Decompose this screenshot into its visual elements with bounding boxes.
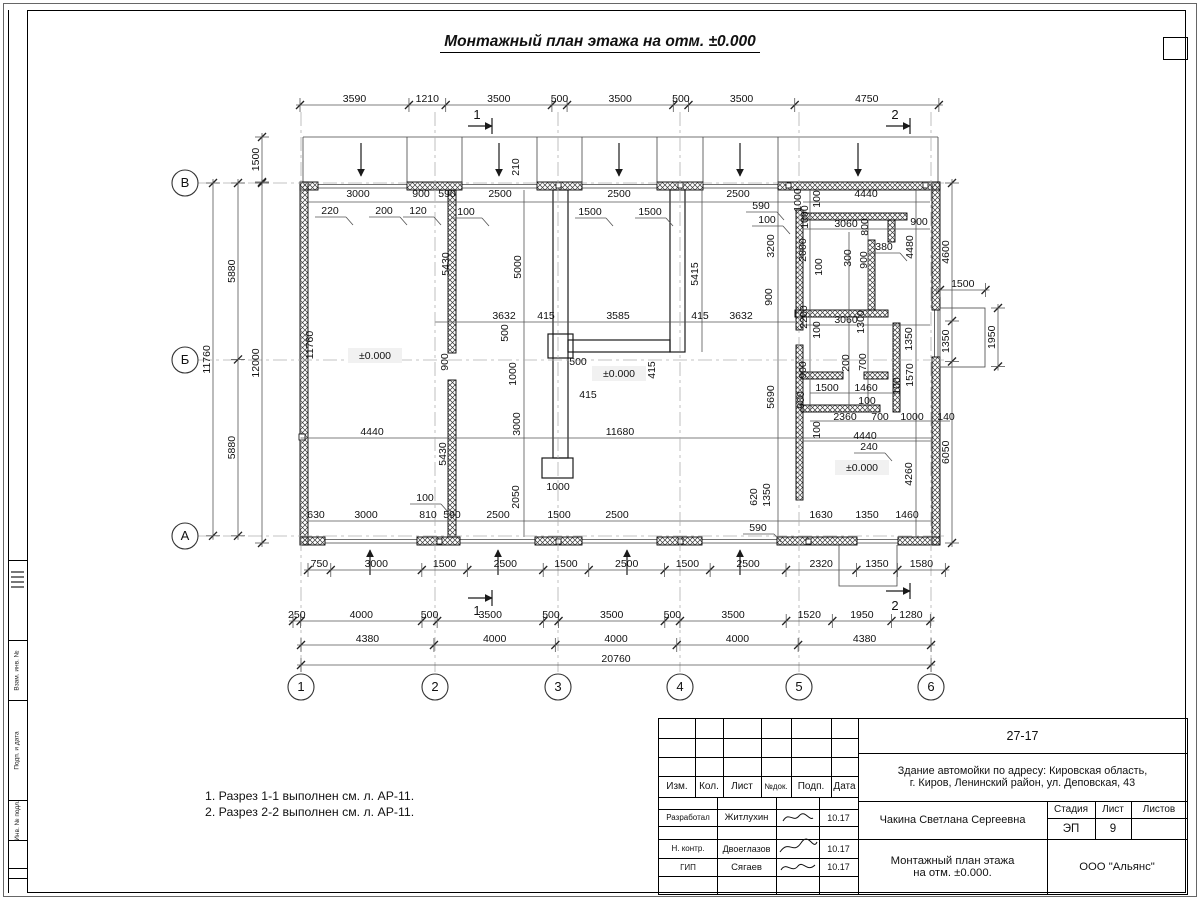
dim-label: А — [181, 528, 190, 543]
dim-label: 3500 — [600, 609, 624, 621]
dim-label: 415 — [579, 389, 597, 401]
person-date: 10.17 — [819, 858, 858, 876]
dim-label: 1 — [473, 107, 480, 122]
dim-label: 3000 — [365, 558, 389, 570]
dim-label: 630 — [307, 509, 325, 521]
dim-label: 2500 — [605, 509, 629, 521]
dim-label: 11760 — [304, 331, 316, 360]
dim-label: 900 — [795, 391, 807, 409]
dim-label: В — [181, 175, 190, 190]
dim-label: 1300 — [855, 310, 867, 334]
dim-label: 3500 — [479, 609, 503, 621]
dim-label: 700 — [871, 411, 889, 423]
dim-label: 240 — [860, 441, 878, 453]
dim-label: 590 — [749, 522, 767, 534]
dim-label: 3590 — [343, 93, 367, 105]
dim-label: 1350 — [761, 483, 773, 507]
dim-label: 3632 — [492, 310, 516, 322]
dim-label: 1000 — [546, 481, 570, 493]
dim-label: 1350 — [865, 558, 889, 570]
dim-label: 3 — [554, 679, 561, 694]
dim-label: 900 — [763, 288, 775, 306]
dim-label: 100 — [758, 214, 776, 226]
dim-label: 6 — [927, 679, 934, 694]
dim-label: 3060 — [834, 218, 858, 230]
dim-label: 1280 — [899, 609, 923, 621]
dim-label: 415 — [691, 310, 709, 322]
dim-label: 3500 — [721, 609, 745, 621]
stage-label: Стадия — [1047, 801, 1095, 818]
dim-label: 100 — [811, 190, 823, 208]
person-name: Сягаев — [717, 858, 776, 876]
dim-label: 1580 — [910, 558, 934, 570]
dim-label: 1520 — [798, 609, 822, 621]
dim-label: 100 — [813, 258, 825, 276]
dim-label: 3200 — [765, 234, 777, 258]
dim-label: 1570 — [904, 363, 916, 387]
signature — [777, 837, 819, 858]
dim-label: 810 — [419, 509, 437, 521]
dim-label: 3585 — [606, 310, 630, 322]
dim-label: 4000 — [350, 609, 374, 621]
dim-label: 5880 — [226, 259, 238, 283]
dim-label: 120 — [409, 205, 427, 217]
person-role: ГИП — [659, 858, 717, 876]
dim-label: 4480 — [904, 235, 916, 259]
dim-label: 1 — [297, 679, 304, 694]
dim-label: 500 — [672, 93, 690, 105]
dim-label: 415 — [646, 361, 658, 379]
dim-label: 3500 — [487, 93, 511, 105]
organization-name: ООО "Альянс" — [1047, 839, 1187, 894]
title-block: Изм. Кол. Лист №док. Подп. Дата Разработ… — [658, 718, 1188, 895]
dim-label: 1500 — [250, 148, 262, 172]
dim-label: 500 — [664, 609, 682, 621]
dim-label: 300 — [842, 249, 854, 267]
dim-label: 140 — [937, 411, 955, 423]
dim-label: 3500 — [730, 93, 754, 105]
dim-label: 5 — [795, 679, 802, 694]
signature — [777, 858, 819, 876]
dim-label: 220 — [321, 205, 339, 217]
dim-label: 620 — [748, 488, 760, 506]
dim-label: 900 — [412, 188, 430, 200]
dim-label: 2500 — [494, 558, 518, 570]
dim-label: 3000 — [511, 412, 523, 436]
dim-label: 1500 — [951, 278, 975, 290]
dim-label: 12000 — [250, 348, 262, 377]
dim-label: 2000 — [797, 238, 809, 262]
rev-header-data: Дата — [831, 776, 858, 797]
dim-label: 1500 — [815, 382, 839, 394]
author-name: Чакина Светлана Сергеевна — [858, 801, 1047, 839]
dim-label: 500 — [551, 93, 569, 105]
dim-label: 590 — [752, 200, 770, 212]
window-marks — [299, 183, 928, 544]
drawing-sheet: Взам. инв. № Подп. и дата Инв. № подл. М… — [0, 0, 1200, 900]
dim-label: 1000 — [799, 205, 811, 229]
dim-label: 2 — [891, 107, 898, 122]
dim-label: 2320 — [810, 558, 834, 570]
stage-value: ЭП — [1047, 818, 1095, 839]
dim-label: 100 — [858, 395, 876, 407]
dim-label: ±0.000 — [359, 350, 391, 362]
project-address: Здание автомойки по адресу: Кировская об… — [858, 753, 1187, 801]
dim-label: 2 — [431, 679, 438, 694]
dim-label: 4380 — [853, 633, 877, 645]
dim-label: 4000 — [726, 633, 750, 645]
dim-label: 700 — [857, 353, 869, 371]
dim-label: 200 — [375, 205, 393, 217]
dim-label: 250 — [288, 609, 306, 621]
dim-label: 2500 — [488, 188, 512, 200]
dim-label: 1950 — [986, 325, 998, 349]
dim-label: 500 — [499, 324, 511, 342]
dim-label: 3000 — [354, 509, 378, 521]
dim-label: 11680 — [606, 426, 635, 438]
dim-label: 3000 — [346, 188, 370, 200]
dim-label: 1350 — [903, 327, 915, 351]
dim-label: 4260 — [903, 462, 915, 486]
dim-label: 1460 — [854, 382, 878, 394]
dim-label: 1350 — [855, 509, 879, 521]
sheet-label: Лист — [1095, 801, 1131, 818]
dim-label: 4000 — [604, 633, 628, 645]
interior-dim-lines — [301, 190, 950, 537]
canopy-lines — [303, 137, 938, 182]
dim-label: 20760 — [601, 653, 630, 665]
rev-header-kol: Кол. — [695, 776, 723, 797]
dim-label: 2500 — [607, 188, 631, 200]
dim-label: 5000 — [512, 255, 524, 279]
rev-header-izm: Изм. — [659, 776, 695, 797]
dim-label: 2500 — [726, 188, 750, 200]
dim-label: 4000 — [483, 633, 507, 645]
dim-label: 4380 — [356, 633, 380, 645]
dim-label: 4600 — [940, 240, 952, 264]
dim-label: ±0.000 — [846, 462, 878, 474]
dim-label: 3500 — [609, 93, 633, 105]
dim-label: 2500 — [736, 558, 760, 570]
dim-label: 900 — [439, 353, 451, 371]
dim-label: 2 — [891, 598, 898, 613]
dim-label: 1000 — [900, 411, 924, 423]
dim-label: ±0.000 — [603, 368, 635, 380]
dim-label: 800 — [859, 218, 871, 236]
rev-header-list: Лист — [723, 776, 761, 797]
dim-label: 1500 — [676, 558, 700, 570]
dim-label: 100 — [811, 421, 823, 439]
dim-label: 1500 — [578, 206, 602, 218]
person-role: Разработал — [659, 809, 717, 826]
signature — [779, 809, 817, 826]
dim-label: Б — [181, 352, 190, 367]
dim-label: 100 — [891, 377, 903, 395]
dim-label: 500 — [542, 609, 560, 621]
rev-header-ndok: №док. — [761, 776, 791, 797]
dim-label: 1500 — [638, 206, 662, 218]
dim-label: 900 — [797, 361, 809, 379]
sheets-label: Листов — [1131, 801, 1187, 818]
dim-label: 1500 — [554, 558, 578, 570]
dim-label: 1500 — [547, 509, 571, 521]
dim-label: 1460 — [895, 509, 919, 521]
dim-label: 1000 — [507, 362, 519, 386]
dim-label: 5415 — [689, 262, 701, 286]
drawing-name-line: на отм. ±0.000. — [913, 867, 992, 879]
dim-label: 500 — [421, 609, 439, 621]
dim-label: 100 — [457, 206, 475, 218]
person-role: Н. контр. — [659, 839, 717, 858]
dim-label: 100 — [416, 492, 434, 504]
dim-label: 500 — [569, 356, 587, 368]
dim-label: 11760 — [201, 345, 213, 374]
dim-label: 2360 — [833, 411, 857, 423]
dim-label: 1 — [473, 603, 480, 618]
dim-label: 200 — [840, 354, 852, 372]
address-line: Здание автомойки по адресу: Кировская об… — [898, 765, 1147, 777]
sheet-number: 9 — [1095, 818, 1131, 839]
dim-label: 100 — [811, 321, 823, 339]
dim-label: 1630 — [809, 509, 833, 521]
dim-label: 4 — [676, 679, 683, 694]
dim-label: 2200 — [798, 305, 810, 329]
dim-label: 1500 — [433, 558, 457, 570]
dim-label: 590 — [443, 509, 461, 521]
person-name: Двоеглазов — [717, 839, 776, 858]
address-line: г. Киров, Ленинский район, ул. Деповская… — [910, 777, 1135, 789]
person-name: Житлухин — [717, 809, 776, 826]
dim-label: 2050 — [510, 485, 522, 509]
dim-label: 750 — [311, 558, 329, 570]
dim-label: 2500 — [615, 558, 639, 570]
dim-label: 900 — [910, 216, 928, 228]
dim-label: 4440 — [360, 426, 384, 438]
dim-label: 3632 — [729, 310, 753, 322]
person-date: 10.17 — [819, 809, 858, 826]
dim-label: 5880 — [226, 436, 238, 460]
dim-label: 4440 — [854, 188, 878, 200]
dim-label: 900 — [858, 251, 870, 269]
dim-label: 380 — [875, 241, 893, 253]
drawing-name-line: Монтажный план этажа — [891, 855, 1015, 867]
dim-label: 1210 — [416, 93, 440, 105]
rev-header-podp: Подп. — [791, 776, 831, 797]
dim-label: 5430 — [440, 252, 452, 276]
dim-label: 210 — [510, 158, 522, 176]
dim-label: 415 — [537, 310, 555, 322]
dim-label: 5430 — [437, 442, 449, 466]
person-date: 10.17 — [819, 839, 858, 858]
drawing-name: Монтажный план этажа на отм. ±0.000. — [858, 839, 1047, 894]
sheets-total — [1131, 818, 1187, 839]
project-code: 27-17 — [858, 719, 1187, 753]
dim-label: 590 — [438, 188, 456, 200]
dim-label: 2500 — [486, 509, 510, 521]
dim-label: 6050 — [940, 440, 952, 464]
dim-label: 4750 — [855, 93, 879, 105]
dim-label: 1350 — [940, 329, 952, 353]
dim-label: 5690 — [765, 385, 777, 409]
dim-label: 1950 — [850, 609, 874, 621]
